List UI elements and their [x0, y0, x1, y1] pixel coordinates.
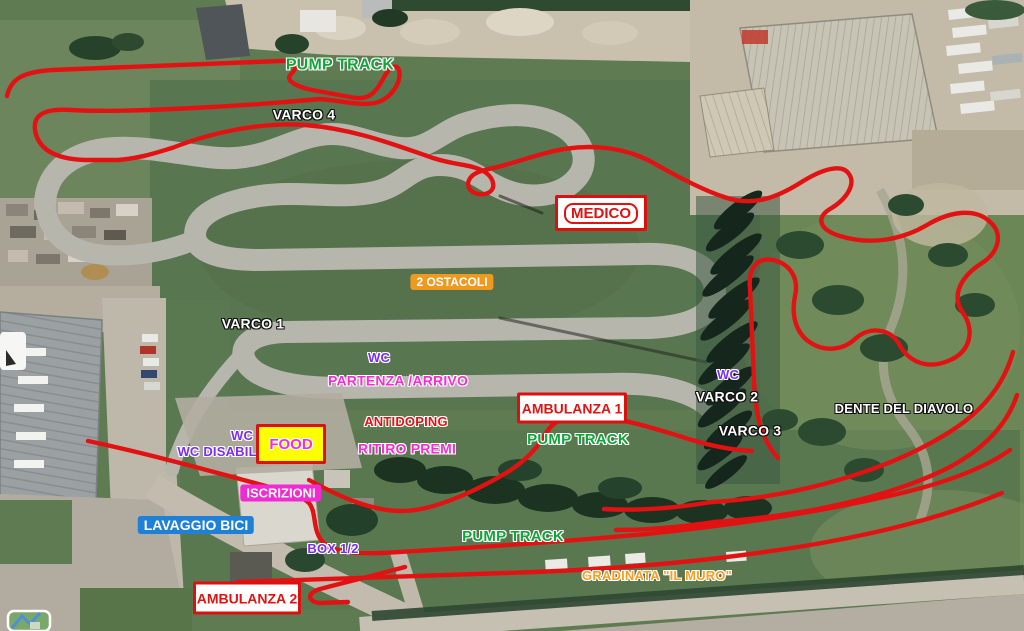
course-map-stage: PUMP TRACK VARCO 4 MEDICO 2 OSTACOLI VAR…: [0, 0, 1024, 631]
label-varco-4: VARCO 4: [273, 108, 336, 123]
label-wc-left: WC: [231, 429, 253, 443]
label-varco-1: VARCO 1: [222, 317, 285, 332]
label-wc-center: WC: [368, 351, 390, 365]
label-ambulanza-2: AMBULANZA 2: [197, 590, 298, 606]
label-gradinata-il-muro: GRADINATA "IL MURO": [582, 569, 732, 583]
label-antidoping: ANTIDOPING: [364, 415, 448, 429]
minimap-inset[interactable]: [8, 611, 50, 631]
label-medico-box: MEDICO: [555, 195, 647, 231]
label-pump-track-top: PUMP TRACK: [286, 58, 394, 75]
label-ambulanza-1-box: AMBULANZA 1: [517, 393, 627, 424]
label-medico: MEDICO: [564, 203, 638, 224]
label-food: FOOD: [269, 436, 312, 453]
label-lavaggio-bici: LAVAGGIO BICI: [138, 516, 254, 534]
label-partenza-arrivo: PARTENZA /ARRIVO: [328, 374, 468, 389]
label-pump-track-mid: PUMP TRACK: [527, 432, 629, 448]
label-varco-2: VARCO 2: [696, 390, 759, 405]
label-ambulanza-1: AMBULANZA 1: [522, 400, 623, 416]
label-ritiro-premi: RITIRO PREMI: [358, 442, 456, 457]
label-food-box: FOOD: [256, 424, 326, 464]
label-iscrizioni: ISCRIZIONI: [240, 485, 321, 502]
label-pump-track-bottom: PUMP TRACK: [462, 529, 564, 545]
label-wc-right: WC: [717, 368, 739, 382]
label-wc-disabili: WC DISABILI: [177, 445, 260, 459]
label-box-1-2: BOX 1/2: [307, 542, 358, 556]
label-dente-del-diavolo: DENTE DEL DIAVOLO: [835, 402, 974, 416]
label-2-ostacoli: 2 OSTACOLI: [410, 274, 493, 290]
label-ambulanza-2-box: AMBULANZA 2: [193, 582, 301, 615]
label-varco-3: VARCO 3: [719, 424, 782, 439]
